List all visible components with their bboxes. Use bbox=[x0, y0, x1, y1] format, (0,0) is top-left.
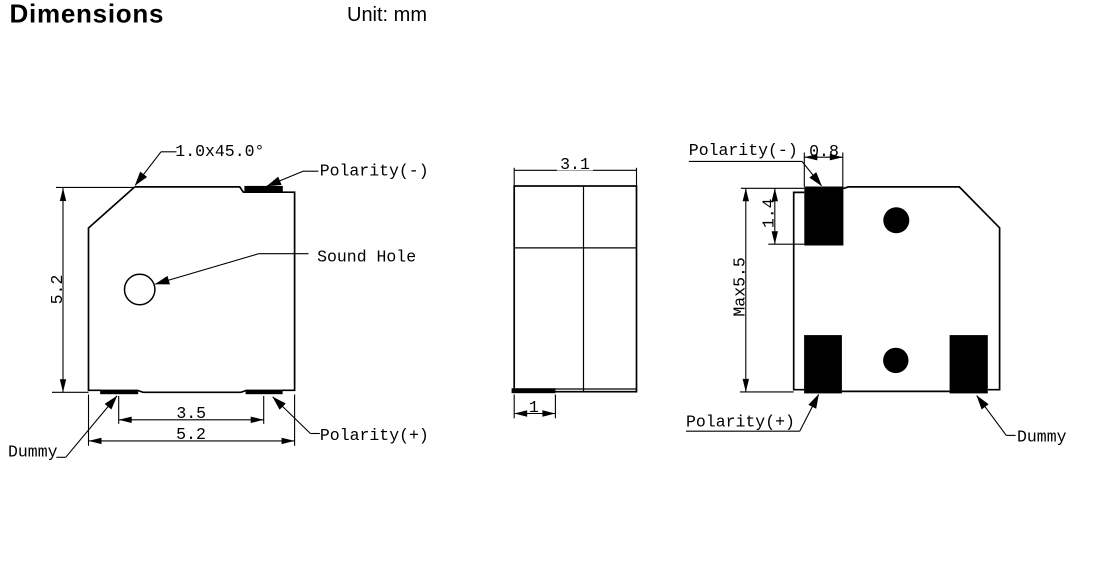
svg-text:3.5: 3.5 bbox=[176, 404, 206, 423]
svg-text:5.2: 5.2 bbox=[48, 275, 67, 305]
svg-text:Polarity(+): Polarity(+) bbox=[320, 426, 429, 445]
svg-text:Polarity(-): Polarity(-) bbox=[689, 141, 798, 160]
svg-text:1.4: 1.4 bbox=[760, 198, 779, 228]
svg-text:1: 1 bbox=[529, 398, 539, 417]
svg-text:Dimensions: Dimensions bbox=[10, 0, 164, 29]
svg-text:Polarity(+): Polarity(+) bbox=[686, 412, 795, 431]
svg-text:Dummy: Dummy bbox=[1017, 427, 1067, 446]
svg-text:1.0x45.0°: 1.0x45.0° bbox=[175, 142, 264, 161]
svg-text:0.8: 0.8 bbox=[809, 142, 839, 161]
svg-text:Dummy: Dummy bbox=[8, 443, 58, 462]
svg-text:Polarity(-): Polarity(-) bbox=[320, 161, 429, 180]
svg-text:Max5.5: Max5.5 bbox=[731, 257, 750, 316]
svg-text:Unit: mm: Unit: mm bbox=[347, 4, 427, 26]
svg-text:Sound Hole: Sound Hole bbox=[317, 247, 416, 266]
svg-text:5.2: 5.2 bbox=[176, 425, 206, 444]
svg-text:3.1: 3.1 bbox=[560, 155, 590, 174]
